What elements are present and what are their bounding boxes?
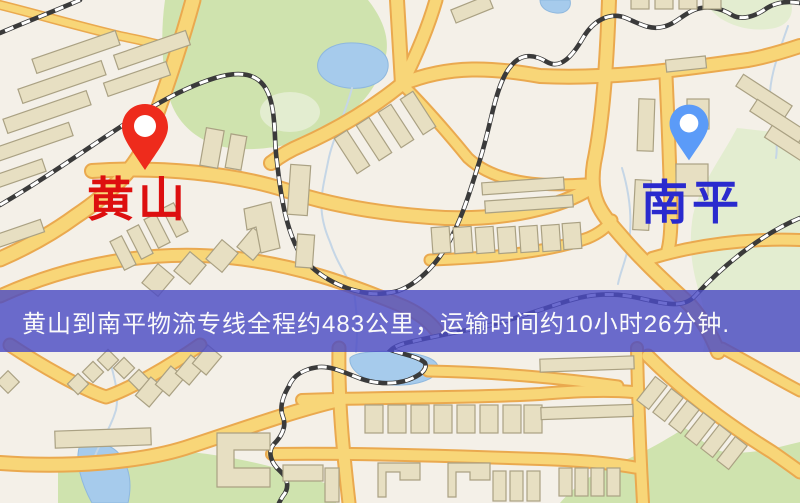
destination-label: 南平 bbox=[641, 179, 743, 226]
origin-label: 黄山 bbox=[87, 176, 189, 223]
route-info-banner: 黄山到南平物流专线全程约483公里，运输时间约10小时26分钟. bbox=[0, 290, 800, 352]
map-image[interactable] bbox=[0, 0, 800, 503]
map-canvas[interactable]: 黄山 南平 黄山到南平物流专线全程约483公里，运输时间约10小时26分钟. bbox=[0, 0, 800, 503]
route-info-text: 黄山到南平物流专线全程约483公里，运输时间约10小时26分钟. bbox=[0, 304, 730, 339]
origin-pin-icon[interactable] bbox=[119, 102, 171, 172]
destination-pin-icon[interactable] bbox=[667, 99, 711, 166]
